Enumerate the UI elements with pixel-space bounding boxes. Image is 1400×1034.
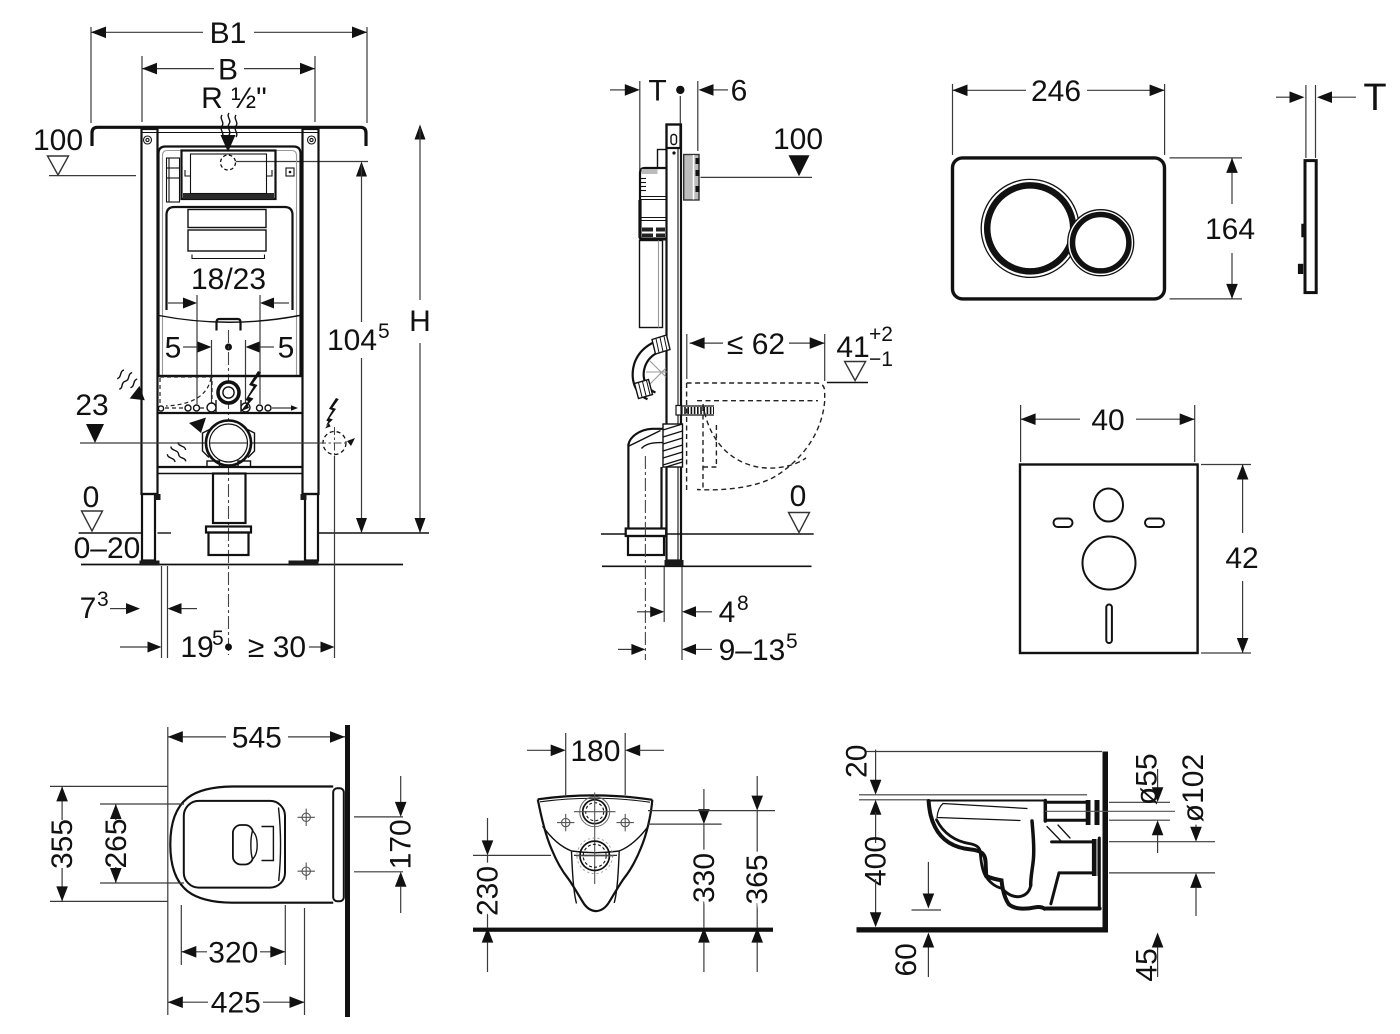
svg-text:355: 355 xyxy=(46,819,79,869)
svg-text:425: 425 xyxy=(211,987,261,1020)
svg-text:104: 104 xyxy=(327,324,377,357)
svg-text:≥ 30: ≥ 30 xyxy=(248,631,306,664)
svg-text:170: 170 xyxy=(385,819,418,869)
svg-text:3: 3 xyxy=(97,588,109,611)
svg-text:9–13: 9–13 xyxy=(719,634,786,667)
svg-text:0: 0 xyxy=(83,481,100,514)
svg-text:≤ 62: ≤ 62 xyxy=(727,328,785,361)
svg-text:23: 23 xyxy=(75,389,108,422)
svg-text:+2: +2 xyxy=(869,323,893,346)
svg-text:0–20: 0–20 xyxy=(74,532,141,565)
svg-text:5: 5 xyxy=(165,332,182,365)
svg-text:180: 180 xyxy=(570,735,620,768)
svg-text:18/23: 18/23 xyxy=(191,263,266,296)
svg-text:5: 5 xyxy=(278,332,295,365)
svg-text:19: 19 xyxy=(180,631,213,664)
svg-text:545: 545 xyxy=(232,722,282,755)
svg-text:20: 20 xyxy=(841,745,874,778)
svg-text:6: 6 xyxy=(731,75,748,108)
svg-text:60: 60 xyxy=(890,943,923,976)
svg-text:230: 230 xyxy=(472,866,505,916)
svg-text:100: 100 xyxy=(33,124,83,157)
svg-text:40: 40 xyxy=(1091,404,1124,437)
svg-text:45: 45 xyxy=(1130,948,1163,981)
svg-text:ø55: ø55 xyxy=(1130,753,1163,805)
svg-text:8: 8 xyxy=(737,592,749,615)
svg-text:T: T xyxy=(1363,77,1386,119)
svg-text:4: 4 xyxy=(719,596,736,629)
svg-text:0: 0 xyxy=(790,480,807,513)
svg-text:246: 246 xyxy=(1031,75,1081,108)
svg-text:H: H xyxy=(409,305,431,338)
svg-text:B1: B1 xyxy=(210,17,247,50)
svg-text:7: 7 xyxy=(80,592,97,625)
svg-text:T: T xyxy=(648,75,666,108)
svg-text:330: 330 xyxy=(688,853,721,903)
svg-text:42: 42 xyxy=(1225,542,1258,575)
svg-text:365: 365 xyxy=(741,854,774,904)
svg-text:100: 100 xyxy=(773,123,823,156)
svg-text:400: 400 xyxy=(860,836,893,886)
svg-text:164: 164 xyxy=(1205,213,1255,246)
svg-text:R ½": R ½" xyxy=(201,82,267,115)
svg-text:320: 320 xyxy=(208,936,258,969)
svg-text:265: 265 xyxy=(100,818,133,868)
svg-text:5: 5 xyxy=(378,320,390,343)
svg-text:5: 5 xyxy=(212,627,224,650)
svg-text:−1: −1 xyxy=(869,348,893,371)
svg-text:5: 5 xyxy=(786,630,798,653)
svg-text:41: 41 xyxy=(836,331,869,364)
svg-text:ø102: ø102 xyxy=(1177,754,1210,822)
